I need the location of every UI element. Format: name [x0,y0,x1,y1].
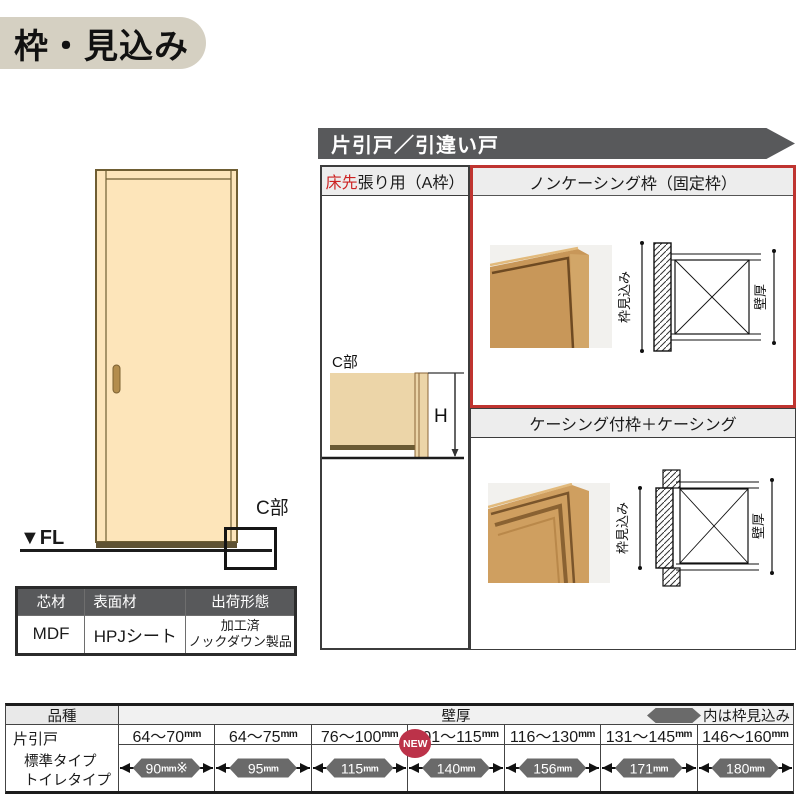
depth-suffix: ※ [176,760,188,777]
arrow-left-icon [602,763,612,773]
frame-depth-badge: 180mm [711,759,779,778]
wall-range-cell: 64～75mm [215,725,311,745]
range-text: 76～100 [321,723,382,747]
casing-bottom-tab [663,568,680,586]
noncasing-section: ノンケーシング枠（固定枠） 枠見込み [470,165,796,408]
detail-door-bottom [330,445,416,450]
frame-depth-badge: 156mm [518,759,586,778]
kind-header-cell: 品種 [6,706,119,725]
c-section-callout-label: C部 [256,493,289,520]
wall-range-cell: 116～130mm [505,725,601,745]
wall-range-cell: 76～100mm [312,725,408,745]
door-elevation-figure [95,169,239,551]
arrow-right-icon [589,763,599,773]
casing-header: ケーシング付枠＋ケーシング [470,408,796,438]
wall-thickness-spec-table: 品種 壁厚 内は枠見込み 片引戸 標準タイプ トイレタイプ 64～70mm 64… [5,703,794,794]
a-frame-header-rest: 張り用（A枠） [358,169,465,193]
arrow-left-icon [216,763,226,773]
detail-door-panel [330,373,416,445]
frame-depth-badge: 115mm [326,759,394,778]
arrow-left-icon [506,763,516,773]
materials-shipping-value: 加工済 ノックダウン製品 [186,615,295,654]
range-unit: mm [772,729,789,740]
depth-unit: mm [263,763,278,773]
depth-value: 115 [341,760,363,776]
legend-hexagon-icon [647,708,701,723]
wall-range-cell: 64～70mm [119,725,215,745]
depth-value: 156 [533,760,556,776]
materials-surface-value: HPJシート [85,615,186,654]
frame-hatched-profile [654,243,671,351]
frame-depth-cell: 115mm [312,745,408,791]
range-unit: mm [381,729,398,740]
frame-depth-cell: NEW 140mm [408,745,504,791]
depth-value: 95 [248,760,264,776]
height-dimension-arrow [452,449,459,457]
depth-unit: mm [749,763,764,773]
noncasing-section-diagram: 枠見込み 壁厚 [618,233,793,363]
frame-depth-badge: 171mm [615,759,683,778]
c-section-callout-box [224,527,277,570]
new-badge: NEW [399,729,431,758]
arrow-right-icon [396,763,406,773]
materials-header-shipping: 出荷形態 [186,588,295,615]
wall-thickness-label: 壁厚 [751,513,766,539]
page: 枠・見込み ▼FL C部 芯材 表面材 出荷形態 MDF HPJシート 加工済 … [0,0,800,800]
a-frame-header-highlight: 床先 [326,169,358,193]
arrow-left-icon [409,763,419,773]
wall-range-row: 64～70mm 64～75mm 76～100mm 101～115mm 116～1… [119,725,793,745]
wall-range-cell: 131～145mm [601,725,697,745]
c-section-detail-label: C部 [332,354,358,371]
door-panel [96,170,237,542]
frame-depth-cell: 180mm [698,745,793,791]
frame-depth-badge: 95mm [229,759,297,778]
depth-unit: mm [460,763,475,773]
frame-depth-label: 枠見込み [616,502,630,554]
casing-section: 枠見込み 壁厚 [470,438,796,650]
floor-level-label: ▼FL [20,527,64,550]
section-banner-title: 片引戸／引違い戸 [318,129,499,158]
depth-value: 140 [437,760,460,776]
casing-door-photo [488,483,610,583]
frame-hatched-profile [656,488,673,568]
row-label-cell: 片引戸 標準タイプ トイレタイプ [6,725,119,791]
arrow-left-icon [699,763,709,773]
frame-depth-badge: 140mm [422,759,490,778]
row-label-standard-type: 標準タイプ [24,750,97,771]
noncasing-header: ノンケーシング枠（固定枠） [473,168,793,196]
row-label-door-type: 片引戸 [13,728,58,749]
wall-range-cell: 146～160mm [698,725,793,745]
range-unit: mm [578,729,595,740]
arrow-right-icon [493,763,503,773]
height-dimension-label: H [434,406,448,427]
frame-depth-cell: 90mm※ [119,745,215,791]
frame-depth-badge: 90mm※ [133,759,201,778]
depth-unit: mm [653,763,668,773]
c-section-detail-drawing: C部 H [322,350,468,462]
arrow-right-icon [686,763,696,773]
detail-frame-strip [415,373,428,458]
noncasing-door-photo [490,245,612,348]
materials-core-value: MDF [17,615,85,654]
frame-depth-cell: 156mm [505,745,601,791]
frame-depth-label: 枠見込み [618,271,632,323]
range-text: 146～160 [702,723,771,747]
materials-header-surface: 表面材 [85,588,186,615]
range-text: 116～130 [510,723,578,747]
range-unit: mm [184,729,201,740]
arrow-right-icon [300,763,310,773]
casing-section-diagram: 枠見込み 壁厚 [616,460,791,600]
section-banner: 片引戸／引違い戸 [318,128,795,159]
depth-unit: mm [161,763,176,773]
range-text: 64～70 [133,723,185,747]
materials-header-core: 芯材 [17,588,85,615]
range-unit: mm [281,729,298,740]
row-label-toilet-type: トイレタイプ [24,769,111,790]
shipping-line-1: 加工済 [186,618,294,634]
range-text: 131～145 [606,723,675,747]
frame-depth-row: 90mm※ 95mm 115mm NEW 140mm 156mm [119,745,793,791]
frame-depth-cell: 95mm [215,745,311,791]
arrow-left-icon [120,763,130,773]
depth-value: 180 [726,760,749,776]
arrow-left-icon [313,763,323,773]
arrow-right-icon [203,763,213,773]
wall-thickness-label: 壁厚 [753,284,768,310]
range-unit: mm [675,729,692,740]
door-bottom-rail [96,542,237,548]
page-title: 枠・見込み [0,19,189,68]
depth-value: 90 [146,760,162,776]
depth-value: 171 [630,760,653,776]
shipping-line-2: ノックダウン製品 [186,634,294,650]
depth-unit: mm [557,763,572,773]
page-title-badge: 枠・見込み [0,17,206,69]
range-unit: mm [482,729,499,740]
materials-table: 芯材 表面材 出荷形態 MDF HPJシート 加工済 ノックダウン製品 [16,587,296,655]
range-text: 64～75 [229,723,281,747]
a-frame-panel-header: 床先張り用（A枠） [322,167,468,196]
depth-unit: mm [363,763,378,773]
frame-depth-cell: 171mm [601,745,697,791]
casing-top-tab [663,470,680,488]
door-handle [113,365,120,393]
arrow-right-icon [782,763,792,773]
